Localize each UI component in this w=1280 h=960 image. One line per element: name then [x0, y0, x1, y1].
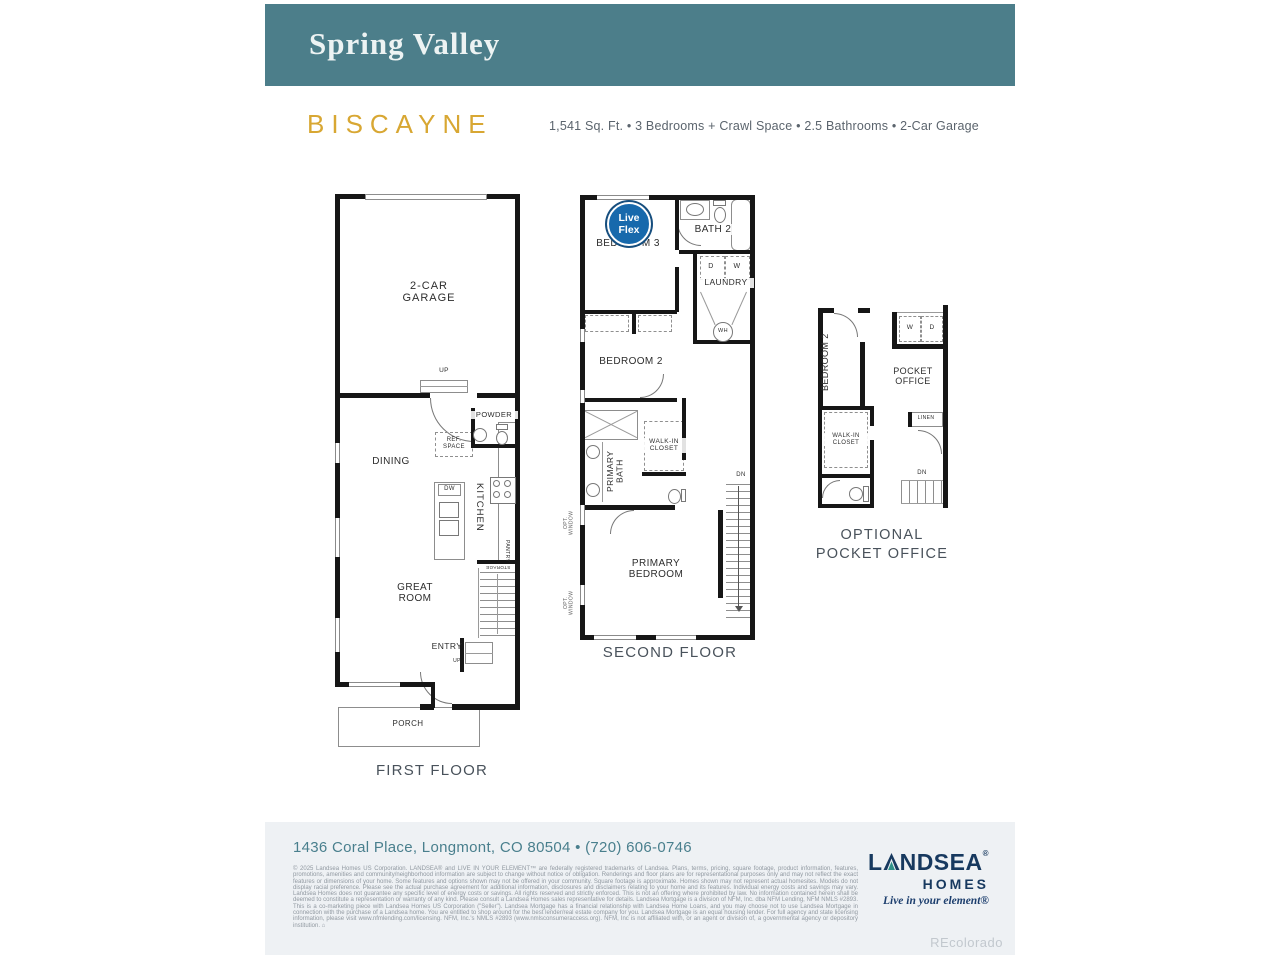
- wall: [335, 194, 340, 443]
- address-line: 1436 Coral Place, Longmont, CO 80504 • (…: [293, 839, 692, 856]
- plan-specs: 1,541 Sq. Ft. • 3 Bedrooms + Crawl Space…: [549, 119, 994, 133]
- opt-window-label: OPT. WINDOW: [564, 577, 578, 629]
- window: [335, 618, 340, 652]
- wall: [860, 342, 865, 410]
- live-flex-badge: Live Flex: [607, 202, 651, 246]
- logo-homes: HOMES: [849, 876, 989, 892]
- entry-label: ENTRY: [427, 642, 467, 652]
- garage-label: 2-CAR GARAGE: [379, 280, 479, 305]
- stairs: [480, 572, 517, 636]
- line: [901, 480, 943, 481]
- walk-in-closet-label: WALK-IN CLOSET: [641, 438, 687, 453]
- plan-name: BISCAYNE: [307, 109, 493, 140]
- wall: [693, 254, 697, 344]
- wall: [892, 344, 944, 349]
- sink-icon: [586, 445, 600, 459]
- wall: [818, 504, 874, 508]
- dryer-label: D: [704, 263, 718, 271]
- window: [335, 443, 340, 463]
- wall: [870, 440, 874, 478]
- powder-label: POWDER: [470, 411, 518, 419]
- line: [901, 503, 943, 504]
- door-arc: [610, 510, 634, 534]
- window: [580, 329, 585, 342]
- window: [597, 195, 649, 200]
- wall: [858, 308, 870, 313]
- sink-icon: [686, 203, 704, 216]
- washer-label: W: [730, 263, 744, 271]
- storage-label: STORAGE: [479, 565, 517, 570]
- first-floor-plan: UP POWDER REF. SPACE DINING DW KITCHEN P…: [332, 190, 532, 790]
- wall: [675, 195, 679, 250]
- toilet-icon: [714, 207, 726, 223]
- great-room-label: GREAT ROOM: [385, 582, 445, 604]
- wall: [335, 557, 340, 618]
- wall: [335, 682, 349, 687]
- flyer-page: Spring Valley BISCAYNE 1,541 Sq. Ft. • 3…: [265, 0, 1015, 960]
- toilet-icon: [496, 424, 508, 430]
- dn-label: DN: [730, 472, 752, 479]
- window: [335, 518, 340, 557]
- sink-icon: [439, 520, 459, 536]
- burner-icon: [504, 480, 511, 487]
- pocket-office-label: POCKET OFFICE: [884, 366, 942, 386]
- second-floor-plan: D W LAUNDRY WH Live Flex BEDROOM 3 BATH …: [580, 192, 760, 672]
- sink-icon: [473, 428, 487, 442]
- wall: [675, 267, 679, 312]
- porch-label: PORCH: [380, 720, 436, 729]
- line: [420, 386, 468, 387]
- linen-label: LINEN: [911, 416, 941, 422]
- toilet-icon: [713, 200, 726, 206]
- landsea-a-icon: [883, 851, 900, 874]
- window: [594, 635, 636, 640]
- wall: [943, 305, 948, 508]
- wall: [452, 704, 520, 710]
- wall: [580, 403, 585, 505]
- stair-arrow-line: [738, 486, 739, 608]
- door-leaf: [700, 292, 716, 325]
- wall: [580, 505, 675, 510]
- burner-icon: [504, 491, 511, 498]
- wall: [750, 195, 755, 640]
- bedroom2-label: BEDROOM 2: [595, 356, 667, 367]
- kitchen-label: KITCHEN: [468, 476, 484, 538]
- opt-window-label: OPT. WINDOW: [564, 497, 578, 549]
- line: [602, 442, 603, 502]
- wall: [635, 635, 657, 640]
- wall: [580, 342, 585, 390]
- logo-tagline: Live in your element®: [849, 895, 989, 907]
- dryer-label: D: [924, 324, 940, 331]
- sink-icon: [439, 502, 459, 518]
- closet-shelf: [585, 315, 629, 332]
- window: [580, 585, 585, 605]
- sink-icon: [586, 483, 600, 497]
- wall: [471, 444, 520, 448]
- registered-mark: ®: [983, 849, 989, 858]
- door-arc: [640, 374, 664, 398]
- wall: [580, 398, 677, 402]
- optional-pocket-office-plan: BEDROOM 2 WALK-IN CLOSET W D POCKET OFFI…: [812, 300, 952, 570]
- wall: [515, 194, 520, 710]
- toilet-icon: [863, 486, 869, 502]
- wall: [679, 250, 753, 254]
- logo-letters: NDSEA: [900, 849, 983, 875]
- primary-bath-label: PRIMARY BATH: [606, 440, 628, 502]
- dining-label: DINING: [360, 456, 422, 467]
- window: [349, 682, 400, 687]
- dw-label: DW: [438, 486, 461, 493]
- bedroom2-label: BEDROOM 2: [820, 328, 836, 396]
- garage-door: [365, 194, 487, 200]
- second-floor-caption: SECOND FLOOR: [590, 644, 750, 661]
- wall: [580, 525, 585, 585]
- legal-disclaimer: © 2025 Landsea Homes US Corporation. LAN…: [293, 866, 858, 929]
- line: [478, 568, 479, 638]
- header-band: Spring Valley: [265, 4, 1015, 86]
- wall: [818, 308, 834, 313]
- door-arc: [918, 430, 942, 454]
- wall: [580, 310, 677, 314]
- closet-shelf: [638, 315, 672, 332]
- landsea-wordmark: LNDSEA®: [849, 850, 989, 874]
- window: [580, 390, 585, 403]
- wall: [335, 463, 340, 518]
- stair-arrow: [735, 606, 743, 612]
- stairs: [726, 484, 752, 618]
- toilet-icon: [496, 431, 508, 445]
- primary-bedroom-label: PRIMARY BEDROOM: [617, 558, 695, 580]
- wall: [870, 406, 874, 426]
- window: [656, 635, 696, 640]
- logo-letter: L: [868, 849, 883, 875]
- first-floor-caption: FIRST FLOOR: [347, 762, 517, 779]
- wall: [695, 635, 755, 640]
- wall: [420, 704, 434, 710]
- wall: [335, 393, 430, 398]
- recolorado-watermark: REcolorado: [930, 935, 1003, 950]
- community-name: Spring Valley: [265, 4, 1015, 62]
- line: [497, 574, 498, 634]
- up-label: UP: [448, 659, 466, 665]
- landsea-logo: LNDSEA® HOMES Live in your element®: [849, 850, 989, 907]
- pantry-label: PANTRY: [497, 534, 509, 568]
- footer: 1436 Coral Place, Longmont, CO 80504 • (…: [265, 822, 1015, 955]
- stairs: [901, 480, 943, 504]
- laundry-label: LAUNDRY: [698, 278, 754, 288]
- wall: [892, 312, 897, 348]
- dn-label: DN: [912, 470, 932, 477]
- burner-icon: [493, 480, 500, 487]
- up-label: UP: [432, 367, 456, 374]
- wall: [818, 474, 874, 478]
- pocket-office-caption: OPTIONAL POCKET OFFICE: [814, 526, 950, 564]
- wall: [580, 635, 595, 640]
- wall: [335, 652, 340, 685]
- wall: [718, 510, 723, 598]
- walk-in-closet-label: WALK-IN CLOSET: [822, 433, 870, 446]
- wh-label: WH: [713, 328, 733, 334]
- burner-icon: [493, 491, 500, 498]
- wall: [477, 393, 520, 398]
- wall: [642, 472, 686, 476]
- toilet-icon: [668, 489, 681, 504]
- wall: [400, 682, 435, 687]
- wall: [648, 195, 755, 200]
- toilet-icon: [849, 487, 863, 501]
- door-leaf: [731, 292, 747, 325]
- door-arc: [834, 313, 858, 337]
- window: [580, 505, 585, 525]
- line: [465, 653, 493, 654]
- wall: [632, 310, 636, 334]
- wall: [580, 195, 585, 329]
- line: [897, 312, 943, 313]
- toilet-icon: [681, 489, 686, 502]
- wall: [818, 406, 874, 410]
- washer-label: W: [902, 324, 918, 331]
- door-arc: [420, 672, 452, 704]
- door-arc: [822, 480, 840, 498]
- ref-space-label: REF. SPACE: [437, 437, 471, 450]
- wall: [580, 605, 585, 637]
- bath2-label: BATH 2: [685, 224, 741, 235]
